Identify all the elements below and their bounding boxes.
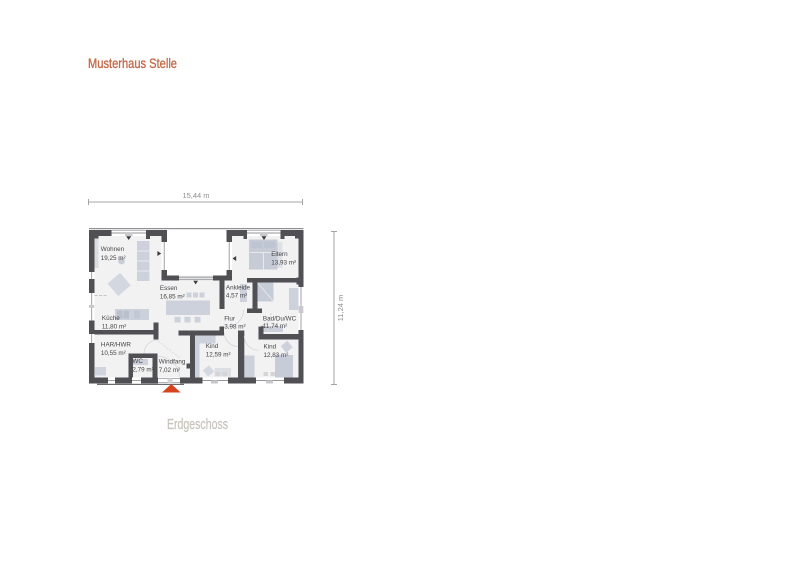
svg-text:11,24 m: 11,24 m [336,295,345,322]
svg-text:7,02 m²: 7,02 m² [159,367,180,374]
svg-text:2,79 m²: 2,79 m² [132,367,153,374]
svg-text:16,85 m²: 16,85 m² [160,293,185,300]
svg-text:11,74 m²: 11,74 m² [263,323,287,330]
svg-text:10,55 m²: 10,55 m² [101,350,126,357]
svg-text:Flur: Flur [224,316,235,323]
svg-text:Wohnen: Wohnen [101,246,125,253]
svg-text:Windfang: Windfang [159,359,186,366]
svg-text:WC: WC [132,358,143,365]
svg-text:Ankleide: Ankleide [226,285,251,292]
svg-text:19,25 m²: 19,25 m² [101,255,126,262]
svg-text:Eltern: Eltern [271,251,288,258]
svg-text:Musterhaus Stelle: Musterhaus Stelle [88,55,177,71]
svg-text:13,93 m²: 13,93 m² [271,259,296,266]
svg-text:Kind: Kind [264,344,277,351]
svg-text:4,57 m²: 4,57 m² [226,293,247,300]
svg-text:Essen: Essen [160,285,178,292]
svg-text:11,80 m²: 11,80 m² [102,324,126,331]
svg-text:Kind: Kind [206,343,219,350]
svg-text:12,83 m²: 12,83 m² [264,352,289,359]
svg-text:3,98 m²: 3,98 m² [224,324,245,331]
svg-text:12,59 m²: 12,59 m² [206,352,231,359]
svg-text:15,44 m: 15,44 m [182,191,209,200]
svg-text:HAR/HWR: HAR/HWR [101,342,132,349]
svg-text:Küche: Küche [102,315,120,322]
svg-text:Erdgeschoss: Erdgeschoss [167,416,228,433]
svg-text:Bad/Du/WC: Bad/Du/WC [263,315,297,322]
